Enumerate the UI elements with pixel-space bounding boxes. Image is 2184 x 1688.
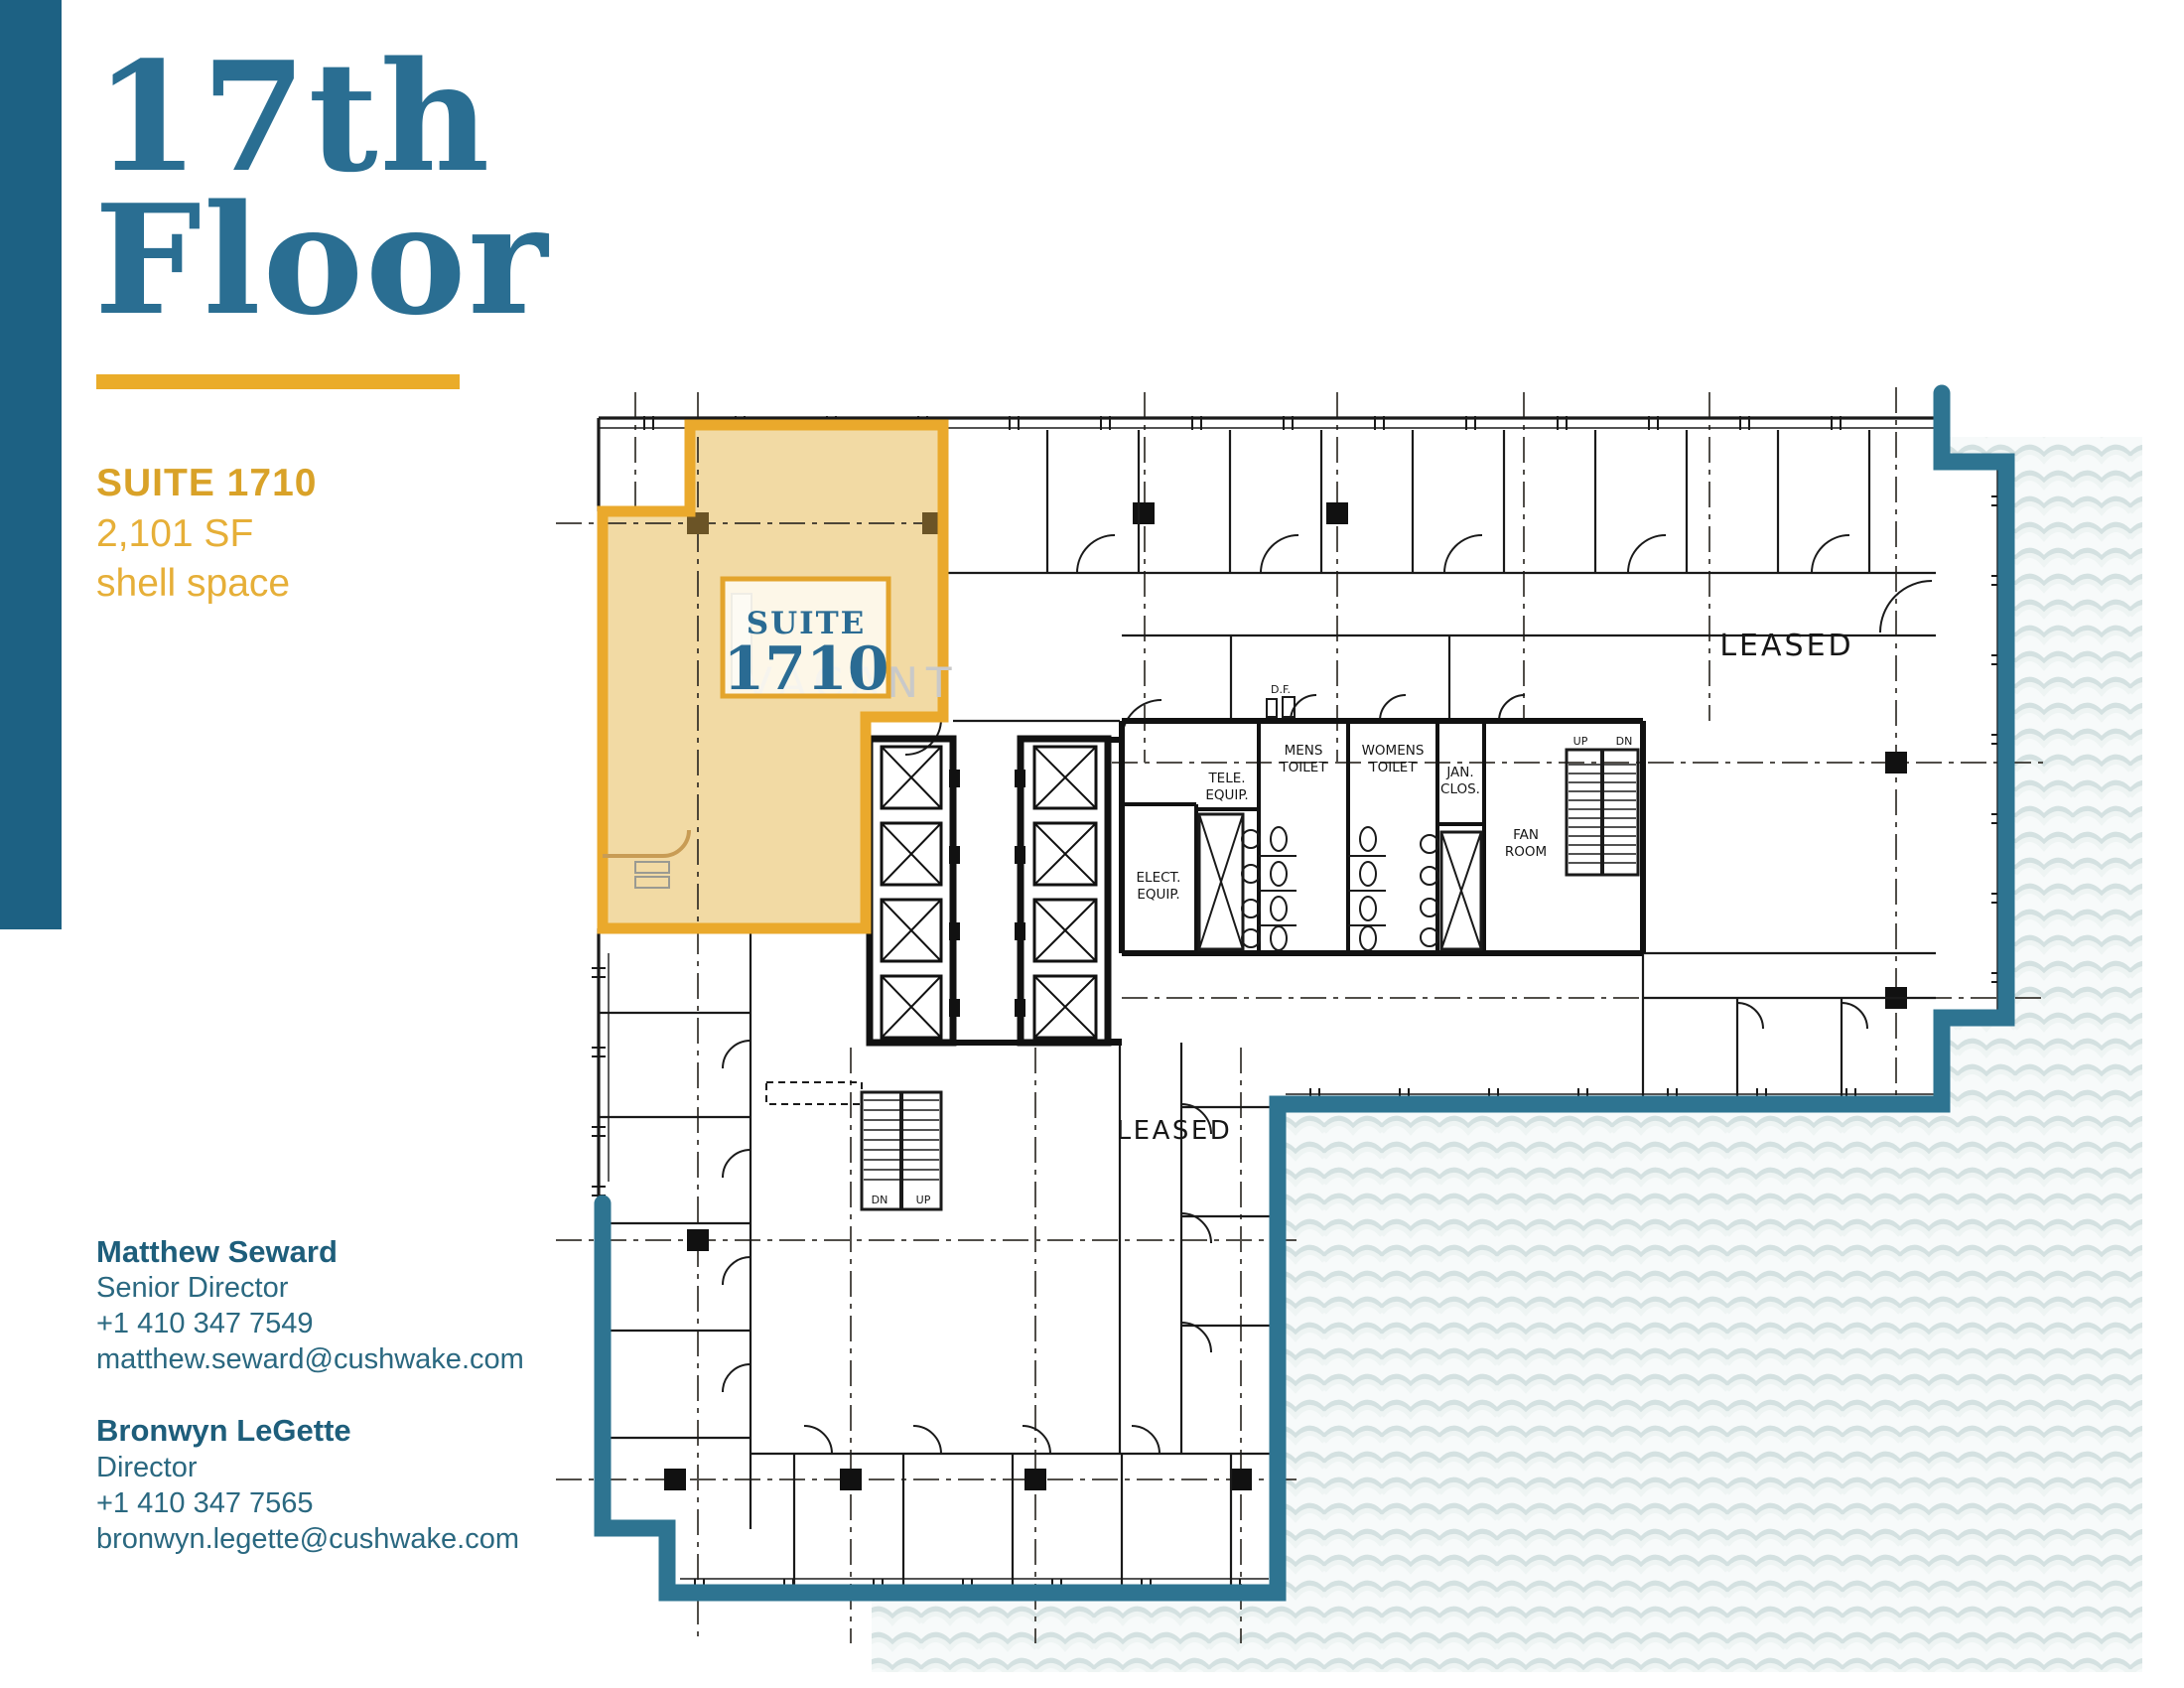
- room-label-mens: TOILET: [1279, 760, 1327, 775]
- suite-label-number: 1710: [724, 634, 889, 704]
- room-label-womens: TOILET: [1368, 760, 1417, 775]
- leased-bottom-label: LEASED: [1117, 1116, 1233, 1146]
- room-label-jan: CLOS.: [1440, 781, 1480, 797]
- room-label-tele: EQUIP.: [1205, 787, 1248, 803]
- room-label-elect: ELECT.: [1137, 870, 1181, 886]
- floorplan-svg: VACANT SUITE 1710 D.F. MENS TOILET WOMEN…: [0, 0, 2184, 1688]
- stair-label-up: UP: [916, 1194, 931, 1206]
- room-label-tele: TELE.: [1207, 771, 1245, 786]
- room-label-df: D.F.: [1271, 683, 1291, 696]
- room-label-fan: FAN: [1513, 827, 1539, 843]
- room-label-mens: MENS: [1285, 743, 1323, 759]
- room-label-fan: ROOM: [1505, 844, 1547, 860]
- room-label-elect: EQUIP.: [1137, 887, 1179, 903]
- stair-label-dn: DN: [872, 1194, 888, 1206]
- leased-right-label: LEASED: [1719, 629, 1853, 663]
- stair-label-dn: DN: [1616, 735, 1633, 748]
- room-label-jan: JAN.: [1445, 765, 1473, 780]
- flyer-page: 17th Floor SUITE 1710 2,101 SF shell spa…: [0, 0, 2184, 1688]
- stair-label-up: UP: [1573, 735, 1588, 748]
- room-label-womens: WOMENS: [1362, 743, 1425, 759]
